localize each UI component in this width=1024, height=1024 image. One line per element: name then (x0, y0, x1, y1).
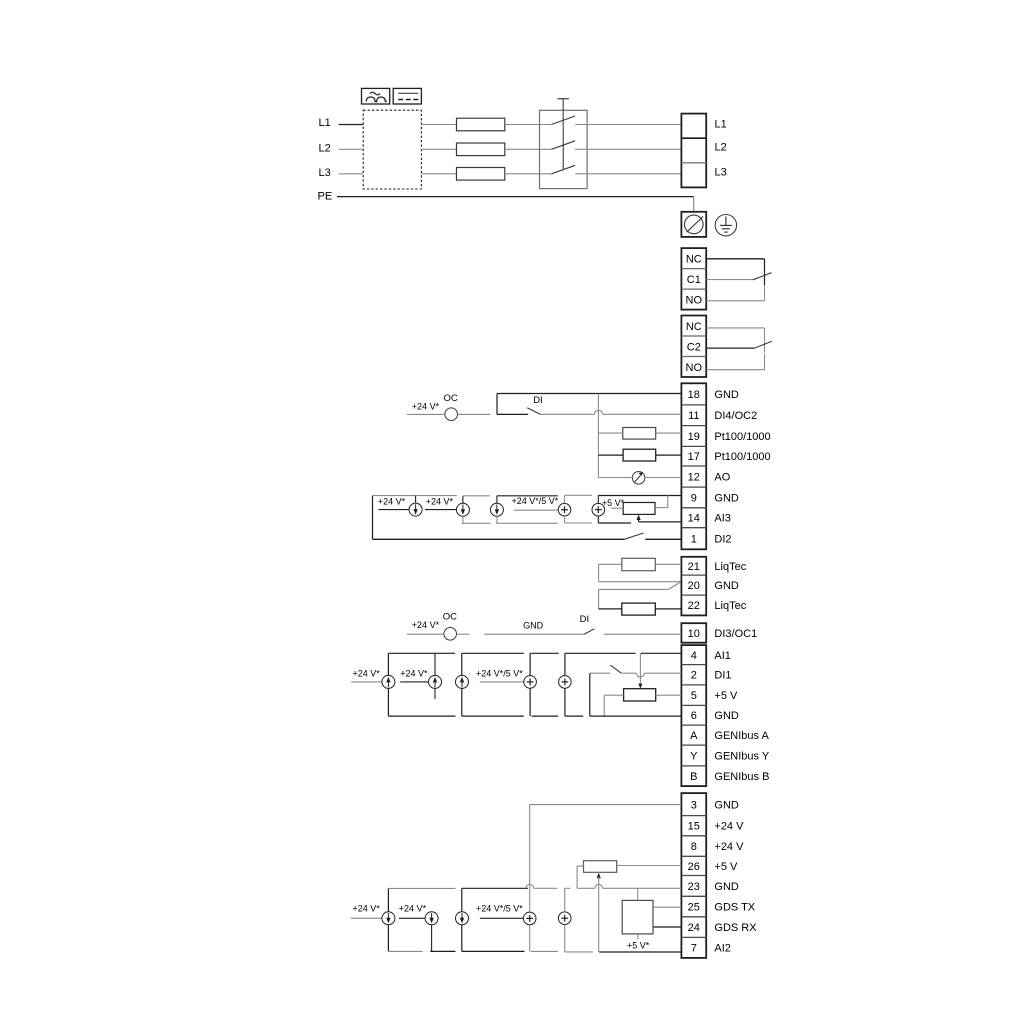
svg-text:DI: DI (533, 395, 543, 406)
svg-text:+24 V*: +24 V* (353, 904, 381, 914)
svg-text:OC: OC (443, 611, 457, 622)
svg-text:+24 V*: +24 V* (399, 904, 427, 914)
svg-text:A: A (690, 730, 698, 742)
svg-text:GDS RX: GDS RX (714, 922, 757, 934)
svg-text:21: 21 (688, 561, 700, 573)
svg-text:8: 8 (691, 841, 697, 853)
svg-text:DI3/OC1: DI3/OC1 (714, 628, 757, 640)
svg-text:AI2: AI2 (714, 943, 731, 955)
svg-text:6: 6 (691, 710, 697, 722)
svg-text:15: 15 (688, 821, 700, 833)
svg-text:GND: GND (714, 710, 739, 722)
svg-text:DI: DI (580, 614, 590, 625)
svg-text:+24 V*: +24 V* (400, 668, 428, 678)
svg-text:GND: GND (714, 389, 739, 401)
svg-text:OC: OC (444, 393, 458, 404)
svg-text:LiqTec: LiqTec (714, 561, 746, 573)
svg-text:C2: C2 (687, 342, 701, 354)
svg-text:25: 25 (688, 901, 700, 913)
svg-text:22: 22 (688, 600, 700, 612)
svg-text:11: 11 (688, 410, 699, 422)
svg-text:NO: NO (686, 295, 703, 307)
svg-text:B: B (690, 771, 697, 783)
svg-text:L2: L2 (715, 142, 727, 154)
svg-text:7: 7 (691, 943, 697, 955)
svg-text:LiqTec: LiqTec (714, 600, 746, 612)
svg-text:DI2: DI2 (714, 533, 731, 545)
svg-text:L1: L1 (715, 118, 727, 130)
svg-text:Y: Y (690, 750, 698, 762)
svg-text:+5 V: +5 V (714, 690, 738, 702)
svg-text:AI1: AI1 (714, 650, 731, 662)
svg-text:5: 5 (691, 690, 697, 702)
svg-text:GDS TX: GDS TX (714, 901, 755, 913)
svg-text:18: 18 (688, 389, 700, 401)
svg-text:14: 14 (688, 513, 700, 525)
svg-text:+5 V*: +5 V* (627, 940, 650, 950)
svg-text:GENIbus B: GENIbus B (714, 771, 769, 783)
svg-text:+24 V*: +24 V* (412, 401, 440, 411)
svg-text:12: 12 (688, 471, 700, 483)
svg-text:NO: NO (686, 362, 703, 374)
svg-text:2: 2 (691, 670, 697, 682)
svg-text:GENIbus A: GENIbus A (714, 730, 769, 742)
svg-text:3: 3 (691, 799, 697, 811)
svg-text:L3: L3 (715, 167, 727, 179)
svg-text:NC: NC (686, 254, 702, 266)
svg-text:GND: GND (714, 580, 739, 592)
svg-text:24: 24 (688, 922, 700, 934)
svg-text:L3: L3 (319, 167, 331, 179)
svg-text:GND: GND (523, 620, 544, 630)
svg-text:DI1: DI1 (714, 670, 731, 682)
svg-text:+24 V: +24 V (714, 841, 744, 853)
svg-text:+24 V*/5 V*: +24 V*/5 V* (476, 904, 523, 914)
svg-text:+24 V*: +24 V* (378, 496, 406, 506)
svg-text:20: 20 (688, 580, 700, 592)
svg-text:GND: GND (714, 492, 739, 504)
svg-text:C1: C1 (687, 274, 701, 286)
svg-text:+24 V*: +24 V* (412, 620, 440, 630)
svg-text:L1: L1 (319, 117, 331, 129)
svg-text:+24 V*: +24 V* (353, 668, 381, 678)
svg-text:10: 10 (688, 628, 700, 640)
svg-text:NC: NC (686, 321, 702, 333)
svg-text:AO: AO (714, 471, 730, 483)
svg-text:GND: GND (714, 799, 739, 811)
svg-text:+24 V*/5 V*: +24 V*/5 V* (476, 668, 523, 678)
svg-text:Pt100/1000: Pt100/1000 (714, 431, 770, 443)
svg-text:+5 V*: +5 V* (602, 498, 625, 508)
svg-text:+24 V: +24 V (714, 821, 744, 833)
svg-text:23: 23 (688, 881, 700, 893)
svg-text:+24 V*/5 V*: +24 V*/5 V* (512, 496, 559, 506)
svg-text:AI3: AI3 (714, 513, 731, 525)
svg-text:GND: GND (714, 881, 739, 893)
svg-text:+5 V: +5 V (714, 861, 738, 873)
svg-text:DI4/OC2: DI4/OC2 (714, 410, 757, 422)
svg-text:17: 17 (688, 451, 700, 463)
svg-text:4: 4 (691, 650, 697, 662)
svg-text:L2: L2 (319, 143, 331, 155)
svg-text:26: 26 (688, 861, 700, 873)
svg-text:1: 1 (691, 533, 697, 545)
svg-text:9: 9 (691, 492, 697, 504)
svg-text:GENIbus Y: GENIbus Y (714, 750, 769, 762)
svg-text:19: 19 (688, 431, 700, 443)
svg-text:Pt100/1000: Pt100/1000 (714, 451, 770, 463)
svg-text:PE: PE (318, 191, 333, 203)
svg-text:+24 V*: +24 V* (426, 496, 454, 506)
